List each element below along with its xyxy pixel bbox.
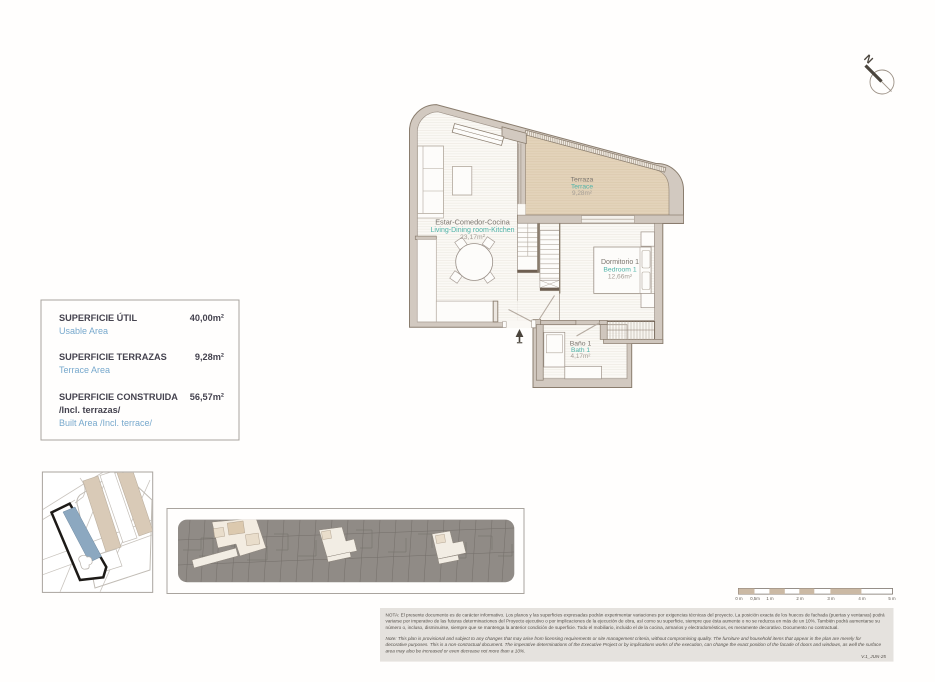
svg-text:SUPERFICIE TERRAZAS: SUPERFICIE TERRAZAS <box>59 352 167 362</box>
svg-text:/Incl. terrazas/: /Incl. terrazas/ <box>59 405 121 415</box>
svg-text:Estar-Comedor-Cocina: Estar-Comedor-Cocina <box>435 218 511 227</box>
svg-text:2 m: 2 m <box>796 596 804 601</box>
svg-text:area may also be increased or: area may also be increased or even decre… <box>386 648 526 653</box>
svg-text:Dormitorio 1: Dormitorio 1 <box>601 259 639 266</box>
svg-text:0,5m: 0,5m <box>750 596 760 601</box>
svg-text:V.1_JUN-25: V.1_JUN-25 <box>861 654 886 659</box>
svg-text:9,28m²: 9,28m² <box>572 190 592 197</box>
svg-text:Terrace Area: Terrace Area <box>59 365 110 375</box>
svg-text:Living-Dining room-Kitchen: Living-Dining room-Kitchen <box>430 227 514 234</box>
svg-text:56,57m²: 56,57m² <box>190 392 224 402</box>
svg-text:12,66m²: 12,66m² <box>608 273 633 280</box>
svg-text:NOTA: El presente documento es: NOTA: El presente documento es de caráct… <box>386 612 885 617</box>
svg-text:variarse por imperativo de las: variarse por imperativo de las futuras d… <box>386 619 881 624</box>
svg-text:40,00m²: 40,00m² <box>190 313 224 323</box>
svg-text:Built Area /Incl. terrace/: Built Area /Incl. terrace/ <box>59 418 153 428</box>
svg-text:4 m: 4 m <box>858 596 866 601</box>
svg-text:SUPERFICIE ÚTIL: SUPERFICIE ÚTIL <box>59 312 137 323</box>
svg-text:1 m: 1 m <box>766 596 774 601</box>
svg-text:Usable Area: Usable Area <box>59 326 108 336</box>
svg-text:5 m: 5 m <box>888 596 896 601</box>
svg-text:Note: This plan is provisional: Note: This plan is provisional and subje… <box>386 636 862 641</box>
svg-text:3 m: 3 m <box>827 596 835 601</box>
svg-text:decorative purposes. This is a: decorative purposes. This is a non-contr… <box>386 642 882 647</box>
svg-text:N: N <box>861 52 875 66</box>
svg-text:0 m: 0 m <box>735 596 743 601</box>
svg-text:9,28m²: 9,28m² <box>195 352 224 362</box>
svg-text:4,17m²: 4,17m² <box>571 353 591 360</box>
svg-text:número o, incluso, disminuirse: número o, incluso, disminuirse, siempre … <box>386 625 839 630</box>
svg-text:SUPERFICIE CONSTRUIDA: SUPERFICIE CONSTRUIDA <box>59 392 178 402</box>
svg-text:23,17m²: 23,17m² <box>460 234 486 241</box>
